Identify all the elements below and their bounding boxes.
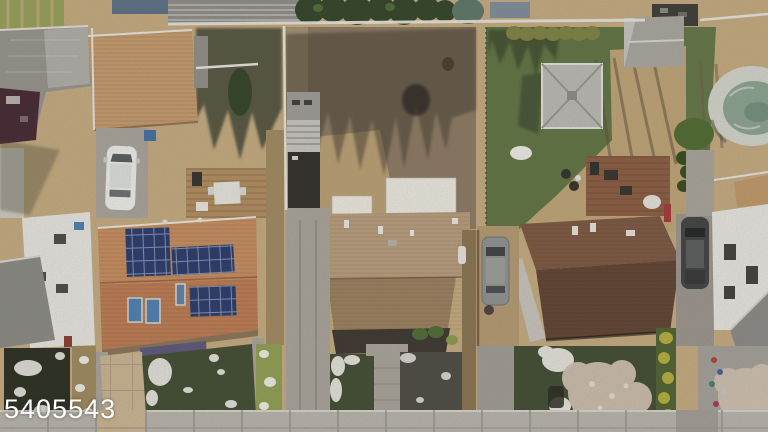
aerial-scene <box>0 0 768 432</box>
mls-watermark: 5405543 <box>4 396 116 423</box>
aerial-photo: 5405543 <box>0 0 768 432</box>
film-grain-overlay <box>0 0 768 432</box>
